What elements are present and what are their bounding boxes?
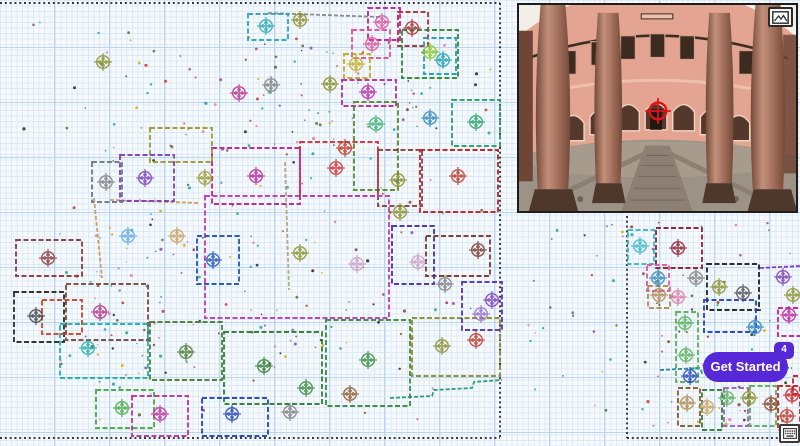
pose-marker[interactable] bbox=[247, 167, 265, 185]
map-dot bbox=[646, 400, 649, 403]
map-dot bbox=[409, 201, 412, 204]
map-dot bbox=[261, 314, 263, 316]
map-dot bbox=[236, 212, 239, 215]
map-dot bbox=[763, 329, 766, 332]
map-dot bbox=[255, 125, 257, 127]
map-dot bbox=[276, 309, 278, 311]
map-dot bbox=[331, 120, 333, 122]
map-dot bbox=[159, 302, 161, 304]
map-dot bbox=[601, 371, 603, 373]
map-dot bbox=[348, 301, 350, 303]
pose-marker[interactable] bbox=[631, 237, 649, 255]
wall-trace bbox=[760, 266, 800, 268]
left-side-wall bbox=[519, 31, 533, 182]
map-dot bbox=[125, 374, 127, 376]
map-dot bbox=[255, 48, 258, 51]
pose-marker[interactable] bbox=[676, 314, 694, 332]
map-dot bbox=[170, 145, 173, 148]
slam-workspace: 4 Get Started bbox=[0, 0, 800, 446]
map-dot bbox=[739, 410, 741, 412]
map-dot bbox=[136, 343, 137, 344]
pose-marker[interactable] bbox=[687, 269, 705, 287]
map-dot bbox=[69, 354, 72, 357]
map-dot bbox=[295, 336, 297, 338]
map-dot bbox=[99, 381, 101, 383]
map-dot bbox=[658, 222, 660, 224]
pose-marker[interactable] bbox=[669, 239, 687, 257]
map-dot bbox=[410, 231, 413, 234]
map-dot bbox=[149, 224, 152, 227]
map-dot bbox=[333, 144, 335, 146]
pose-marker[interactable] bbox=[373, 13, 391, 31]
map-dot bbox=[591, 274, 593, 276]
map-dot bbox=[766, 222, 768, 224]
map-dot bbox=[470, 308, 472, 310]
map-dot bbox=[185, 134, 187, 136]
map-dot bbox=[65, 271, 68, 274]
map-dot bbox=[274, 366, 275, 367]
map-dot bbox=[85, 336, 87, 338]
map-dot bbox=[534, 388, 536, 390]
map-dot bbox=[158, 337, 160, 339]
map-dot bbox=[292, 161, 295, 164]
map-dot bbox=[312, 137, 315, 140]
map-dot bbox=[220, 182, 222, 184]
pose-marker[interactable] bbox=[257, 17, 275, 35]
room-outline bbox=[150, 128, 212, 162]
map-dot bbox=[250, 236, 252, 238]
map-dot bbox=[244, 291, 246, 293]
pose-marker[interactable] bbox=[367, 115, 385, 133]
map-dot bbox=[411, 89, 413, 91]
map-dot bbox=[382, 193, 384, 195]
map-dot bbox=[485, 109, 488, 112]
map-dot bbox=[135, 106, 138, 109]
pose-marker[interactable] bbox=[348, 255, 366, 273]
pose-marker[interactable] bbox=[255, 357, 273, 375]
map-dot bbox=[274, 345, 276, 347]
map-dot bbox=[686, 331, 688, 333]
pose-marker[interactable] bbox=[113, 399, 131, 417]
map-dot bbox=[657, 376, 659, 378]
map-dot bbox=[295, 38, 298, 41]
map-dot bbox=[322, 344, 325, 347]
map-dot bbox=[542, 327, 544, 329]
map-dot bbox=[257, 78, 259, 80]
map-dot bbox=[321, 272, 323, 274]
map-dot bbox=[611, 224, 612, 225]
map-dot bbox=[193, 248, 196, 251]
pose-marker[interactable] bbox=[327, 159, 345, 177]
map-dot bbox=[367, 126, 369, 128]
map-dot bbox=[264, 325, 266, 327]
map-dot bbox=[194, 366, 196, 368]
map-dot bbox=[84, 107, 86, 109]
map-dot bbox=[295, 296, 298, 299]
map-dot bbox=[248, 144, 251, 147]
map-dot bbox=[417, 418, 419, 420]
map-dot bbox=[161, 239, 164, 242]
pose-marker[interactable] bbox=[421, 109, 439, 127]
pose-marker[interactable] bbox=[297, 379, 315, 397]
map-dot bbox=[551, 238, 553, 240]
main-map-canvas[interactable] bbox=[0, 0, 515, 446]
map-dot bbox=[106, 51, 108, 53]
map-dot bbox=[549, 306, 552, 309]
map-dot bbox=[138, 372, 140, 374]
map-dot bbox=[97, 344, 99, 346]
map-dot bbox=[304, 119, 306, 121]
map-dot bbox=[402, 118, 405, 121]
room-outline bbox=[420, 150, 498, 212]
map-dot bbox=[311, 152, 314, 155]
map-dot bbox=[294, 343, 297, 346]
pose-marker[interactable] bbox=[363, 35, 381, 53]
pose-marker[interactable] bbox=[321, 75, 339, 93]
room-outline bbox=[205, 196, 389, 318]
map-dot bbox=[717, 304, 719, 306]
map-dot bbox=[366, 259, 369, 262]
map-dot bbox=[430, 179, 432, 181]
wall-trace bbox=[390, 380, 502, 398]
pose-marker[interactable] bbox=[740, 389, 758, 407]
map-dot bbox=[159, 355, 162, 358]
map-dot bbox=[691, 308, 693, 310]
pose-marker[interactable] bbox=[669, 288, 687, 306]
map-dot bbox=[707, 336, 709, 338]
map-dot bbox=[488, 132, 491, 135]
map-dot bbox=[336, 65, 338, 67]
pose-marker[interactable] bbox=[39, 249, 57, 267]
map-dot bbox=[113, 123, 116, 126]
map-dot bbox=[127, 31, 130, 34]
pose-marker[interactable] bbox=[677, 346, 695, 364]
map-dot bbox=[186, 361, 188, 363]
map-dot bbox=[263, 94, 265, 96]
map-dot bbox=[434, 308, 437, 311]
map-dot bbox=[400, 333, 402, 335]
map-dot bbox=[99, 419, 101, 421]
map-dot bbox=[108, 312, 111, 315]
pose-marker[interactable] bbox=[774, 268, 792, 286]
image-icon bbox=[772, 11, 789, 24]
map-dot bbox=[294, 60, 296, 62]
map-dot bbox=[245, 59, 247, 61]
map-dot bbox=[642, 272, 645, 275]
keyboard-toggle-button[interactable] bbox=[779, 424, 800, 443]
map-dot bbox=[594, 405, 596, 407]
pose-marker[interactable] bbox=[778, 407, 796, 425]
map-dot bbox=[286, 153, 288, 155]
map-dot bbox=[73, 206, 76, 209]
map-dot bbox=[400, 231, 402, 233]
map-dot bbox=[717, 301, 720, 304]
map-dot bbox=[252, 242, 254, 244]
room-outline bbox=[412, 318, 500, 376]
map-dot bbox=[183, 122, 186, 125]
map-dot bbox=[275, 56, 278, 59]
map-dot bbox=[260, 185, 262, 187]
map-dot bbox=[111, 233, 113, 235]
map-dot bbox=[187, 241, 188, 242]
secondary-map-canvas[interactable] bbox=[515, 213, 800, 446]
map-dot bbox=[130, 39, 132, 41]
map-dot bbox=[111, 285, 113, 287]
map-dot bbox=[164, 80, 167, 83]
map-dot bbox=[415, 106, 417, 108]
right-side-wall bbox=[783, 35, 796, 174]
map-dot bbox=[90, 281, 92, 283]
map-dot bbox=[315, 347, 317, 349]
wall-trace bbox=[268, 13, 380, 17]
pose-marker[interactable] bbox=[359, 83, 377, 101]
pose-marker[interactable] bbox=[262, 76, 280, 94]
map-dot bbox=[305, 305, 307, 307]
map-dot bbox=[652, 425, 654, 427]
map-dot bbox=[150, 213, 152, 215]
map-dot bbox=[357, 82, 358, 83]
pose-marker[interactable] bbox=[649, 269, 667, 287]
map-dot bbox=[393, 128, 396, 131]
map-dot bbox=[264, 43, 266, 45]
map-dot bbox=[443, 44, 446, 47]
map-dot bbox=[94, 297, 96, 299]
map-dot bbox=[138, 413, 141, 416]
map-dot bbox=[641, 408, 643, 410]
map-dot bbox=[311, 270, 313, 272]
pose-marker[interactable] bbox=[469, 241, 487, 259]
wall-trace bbox=[285, 162, 289, 290]
map-dot bbox=[192, 324, 194, 326]
pose-marker[interactable] bbox=[94, 53, 112, 71]
image-toggle-button[interactable] bbox=[768, 7, 793, 27]
map-dot bbox=[188, 68, 191, 71]
map-dot bbox=[612, 279, 615, 282]
map-dot bbox=[630, 225, 633, 228]
map-dot bbox=[142, 355, 144, 357]
map-dot bbox=[279, 105, 281, 107]
map-dot bbox=[301, 50, 302, 51]
map-dot bbox=[261, 107, 263, 109]
map-dot bbox=[284, 355, 287, 358]
map-dot bbox=[112, 383, 115, 386]
map-dot bbox=[535, 332, 537, 334]
map-dot bbox=[372, 303, 374, 305]
map-dot bbox=[159, 210, 162, 213]
pose-marker[interactable] bbox=[223, 405, 241, 423]
map-dot bbox=[333, 139, 335, 141]
pose-marker[interactable] bbox=[177, 343, 195, 361]
map-dot bbox=[305, 239, 307, 241]
pose-marker[interactable] bbox=[168, 227, 186, 245]
map-dot bbox=[593, 330, 596, 333]
pose-marker[interactable] bbox=[204, 251, 222, 269]
map-dot bbox=[630, 233, 633, 236]
map-dot bbox=[739, 254, 742, 257]
map-dot bbox=[346, 342, 348, 344]
pose-marker[interactable] bbox=[136, 169, 154, 187]
map-dot bbox=[380, 187, 382, 189]
map-dot bbox=[116, 319, 119, 322]
map-dot bbox=[32, 24, 35, 27]
pose-marker[interactable] bbox=[359, 351, 377, 369]
map-dot bbox=[735, 224, 738, 227]
map-dot bbox=[160, 296, 162, 298]
map-dot bbox=[661, 351, 663, 353]
map-dot bbox=[144, 64, 147, 67]
pose-marker[interactable] bbox=[784, 286, 800, 304]
map-dot bbox=[291, 329, 294, 332]
map-dot bbox=[416, 126, 417, 127]
map-dot bbox=[475, 72, 478, 75]
pose-marker[interactable] bbox=[467, 113, 485, 131]
pose-marker[interactable] bbox=[97, 173, 115, 191]
map-dot bbox=[562, 375, 564, 377]
map-dot bbox=[165, 372, 167, 374]
room-outline bbox=[224, 332, 322, 404]
map-dot bbox=[768, 229, 770, 231]
map-dot bbox=[314, 242, 315, 243]
map-dot bbox=[121, 364, 124, 367]
map-dot bbox=[605, 409, 608, 412]
map-dot bbox=[73, 86, 76, 89]
map-dot bbox=[226, 149, 228, 151]
map-dot bbox=[113, 147, 115, 149]
pose-marker[interactable] bbox=[678, 394, 696, 412]
map-dot bbox=[683, 274, 685, 276]
pose-marker[interactable] bbox=[230, 84, 248, 102]
map-dot bbox=[319, 123, 322, 126]
map-dot bbox=[310, 177, 312, 179]
map-dot bbox=[151, 219, 153, 221]
map-dot bbox=[301, 45, 304, 48]
map-dot bbox=[150, 83, 152, 85]
map-dot bbox=[609, 358, 612, 361]
pose-marker[interactable] bbox=[467, 331, 485, 349]
map-dot bbox=[274, 143, 275, 144]
map-dot bbox=[667, 422, 669, 424]
map-dot bbox=[204, 102, 207, 105]
map-dot bbox=[406, 108, 409, 111]
map-dot bbox=[257, 245, 259, 247]
pose-marker[interactable] bbox=[746, 318, 764, 336]
map-dot bbox=[366, 124, 368, 126]
map-dot bbox=[112, 160, 114, 162]
map-dot bbox=[527, 324, 529, 326]
room-outline bbox=[42, 300, 82, 334]
map-dot bbox=[97, 354, 99, 356]
map-dot bbox=[615, 324, 617, 326]
map-dot bbox=[143, 329, 145, 331]
map-dot bbox=[173, 254, 175, 256]
map-dot bbox=[339, 347, 342, 350]
map-dot bbox=[154, 199, 155, 200]
map-dot bbox=[345, 309, 347, 311]
map-dot bbox=[105, 150, 107, 152]
pose-marker[interactable] bbox=[783, 386, 800, 404]
pose-marker[interactable] bbox=[449, 167, 467, 185]
pose-marker[interactable] bbox=[710, 278, 728, 296]
map-dot bbox=[252, 380, 254, 382]
get-started-label: Get Started bbox=[703, 352, 788, 382]
map-dot bbox=[162, 310, 165, 313]
map-dot bbox=[355, 248, 358, 251]
pose-marker[interactable] bbox=[291, 244, 309, 262]
map-dot bbox=[146, 92, 148, 94]
map-dot bbox=[701, 225, 703, 227]
pose-marker[interactable] bbox=[79, 339, 97, 357]
map-dot bbox=[407, 80, 409, 82]
keyboard-icon bbox=[783, 428, 797, 439]
get-started-button[interactable]: 4 Get Started bbox=[703, 342, 794, 383]
roof-balustrade bbox=[641, 14, 673, 19]
pose-marker[interactable] bbox=[472, 305, 490, 323]
map-dot bbox=[300, 83, 302, 85]
map-dot bbox=[153, 344, 155, 346]
room-outline bbox=[462, 282, 502, 330]
map-dot bbox=[308, 109, 310, 111]
map-dot bbox=[121, 302, 124, 305]
map-dot bbox=[377, 321, 380, 324]
map-dot bbox=[119, 387, 121, 389]
camera-feed-panel[interactable] bbox=[517, 3, 798, 213]
map-dot bbox=[59, 233, 60, 234]
pose-marker[interactable] bbox=[436, 275, 454, 293]
map-dot bbox=[326, 51, 328, 53]
map-dot bbox=[150, 393, 152, 395]
map-dot bbox=[279, 352, 281, 354]
pose-marker[interactable] bbox=[433, 337, 451, 355]
map-dot bbox=[130, 274, 133, 277]
map-dot bbox=[229, 256, 231, 258]
pose-marker[interactable] bbox=[91, 303, 109, 321]
map-dot bbox=[232, 205, 234, 207]
map-dot bbox=[249, 120, 251, 122]
map-dot bbox=[125, 75, 127, 77]
pose-marker[interactable] bbox=[409, 253, 427, 271]
map-dot bbox=[109, 227, 111, 229]
map-dot bbox=[256, 264, 259, 267]
map-dot bbox=[282, 230, 284, 232]
pose-marker[interactable] bbox=[483, 291, 501, 309]
map-dot bbox=[658, 304, 660, 306]
map-dot bbox=[218, 333, 220, 335]
pose-marker[interactable] bbox=[281, 403, 299, 421]
map-dot bbox=[334, 221, 337, 224]
map-dot bbox=[117, 267, 119, 269]
pose-marker[interactable] bbox=[403, 19, 421, 37]
map-dot bbox=[66, 127, 69, 130]
pose-marker[interactable] bbox=[341, 385, 359, 403]
map-dot bbox=[113, 314, 115, 316]
map-dot bbox=[202, 237, 204, 239]
map-dot bbox=[412, 107, 414, 109]
map-dot bbox=[96, 271, 97, 272]
map-dot bbox=[181, 272, 183, 274]
map-dot bbox=[697, 421, 699, 423]
map-dot bbox=[661, 335, 663, 337]
map-dot bbox=[596, 255, 598, 257]
pose-marker[interactable] bbox=[389, 171, 407, 189]
map-dot bbox=[556, 229, 559, 232]
pose-marker[interactable] bbox=[718, 389, 736, 407]
map-dot bbox=[671, 401, 673, 403]
map-dot bbox=[789, 253, 791, 255]
pose-marker[interactable] bbox=[119, 227, 137, 245]
map-dot bbox=[357, 72, 360, 75]
pose-marker[interactable] bbox=[650, 286, 668, 304]
map-dot bbox=[259, 326, 262, 329]
